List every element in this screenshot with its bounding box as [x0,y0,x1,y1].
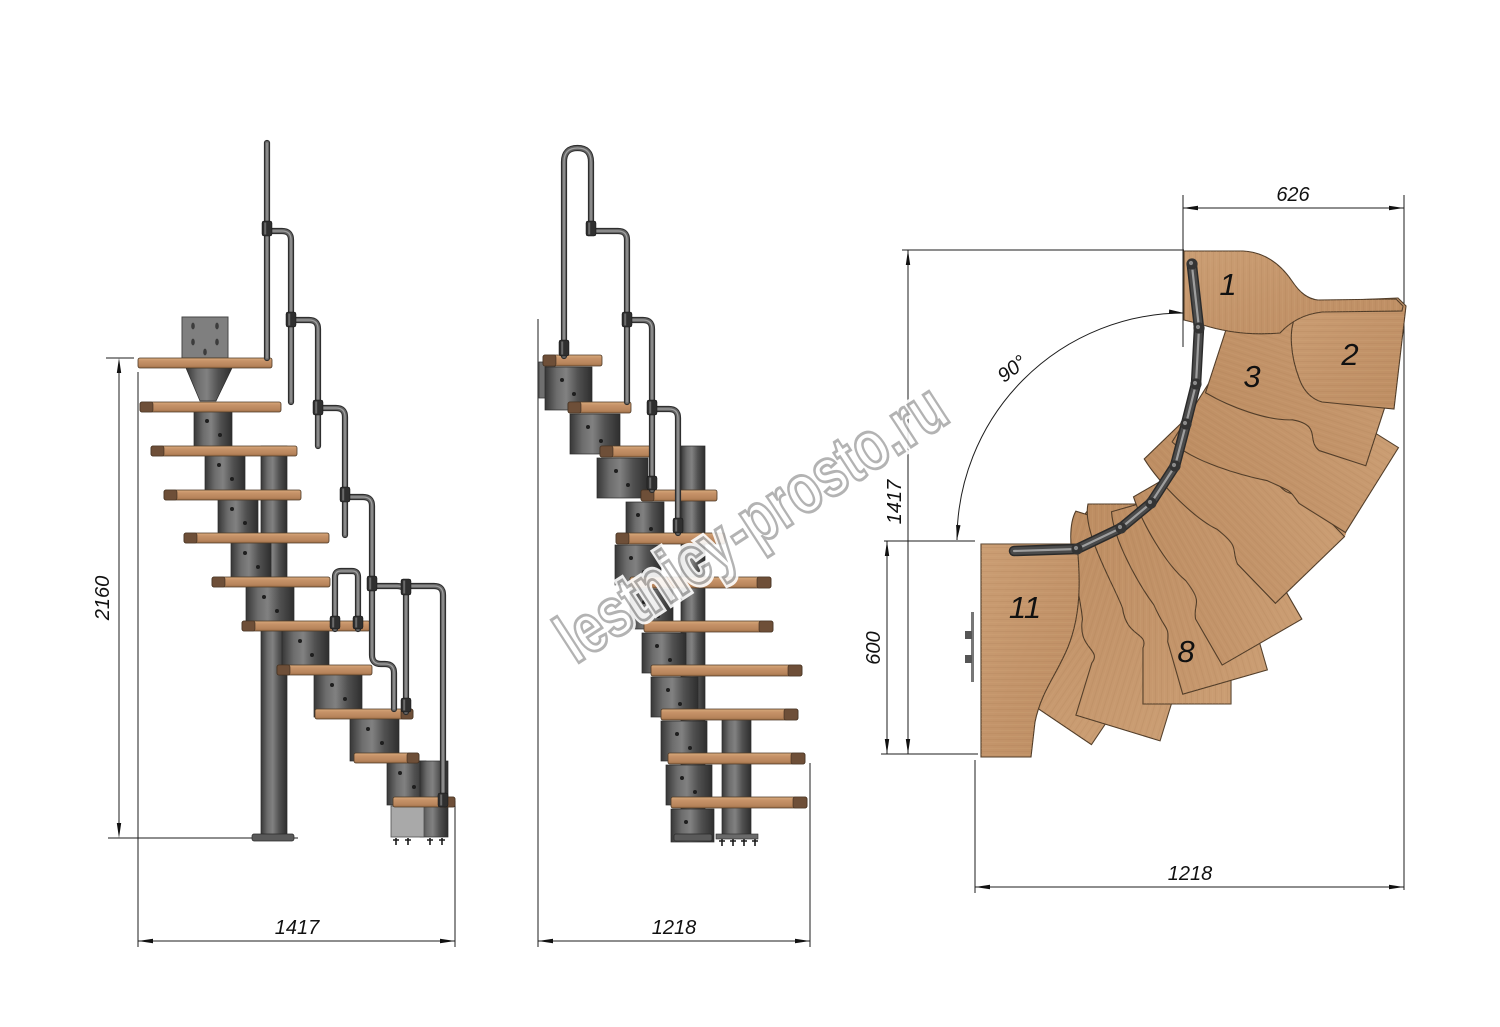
svg-text:2160: 2160 [92,576,114,622]
svg-text:626: 626 [1276,184,1310,206]
svg-text:1: 1 [1219,267,1236,302]
svg-text:1218: 1218 [1168,863,1213,885]
svg-text:2: 2 [1340,337,1358,372]
svg-text:600: 600 [863,631,885,664]
svg-text:1218: 1218 [652,917,697,939]
svg-text:3: 3 [1243,359,1260,394]
svg-text:1417: 1417 [884,479,906,524]
svg-text:1417: 1417 [275,917,320,939]
svg-text:8: 8 [1177,634,1195,669]
svg-text:11: 11 [1009,590,1041,625]
svg-text:90°: 90° [994,351,1031,387]
